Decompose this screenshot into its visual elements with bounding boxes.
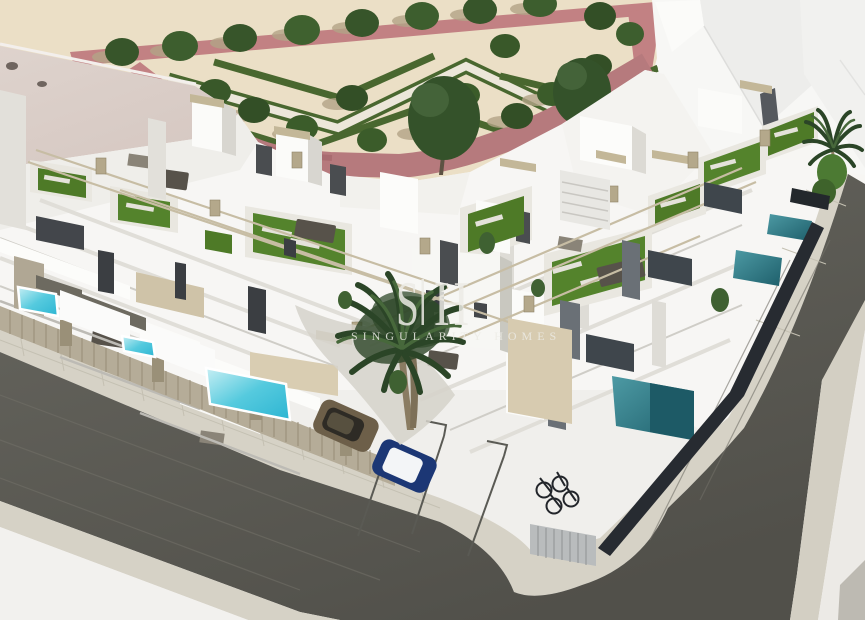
svg-text:SINGULARITY HOMES: SINGULARITY HOMES	[351, 329, 561, 343]
